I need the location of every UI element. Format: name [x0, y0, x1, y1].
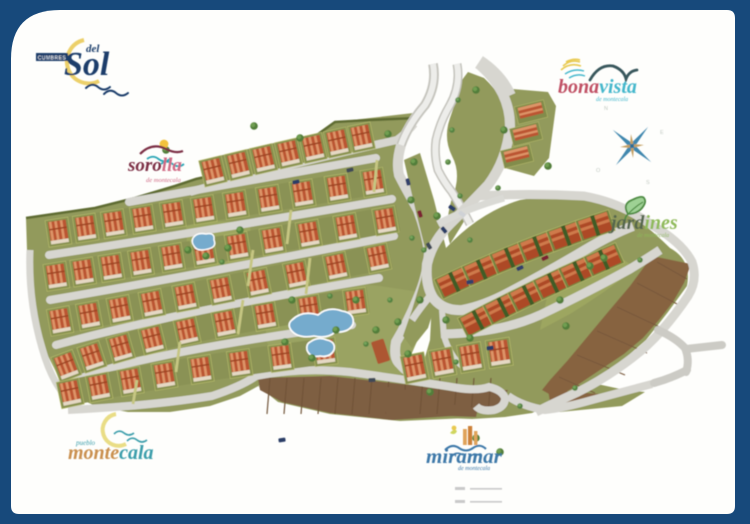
- svg-text:montecala: montecala: [68, 442, 154, 464]
- svg-text:CUMBRES: CUMBRES: [38, 56, 67, 62]
- svg-text:de montecala: de montecala: [458, 466, 490, 472]
- svg-text:miramar: miramar: [426, 444, 503, 468]
- svg-text:N: N: [604, 106, 608, 112]
- svg-text:jardines: jardines: [608, 212, 678, 234]
- svg-text:bonavista: bonavista: [558, 76, 637, 98]
- svg-text:de montecala: de montecala: [637, 233, 669, 239]
- svg-text:Sol: Sol: [64, 46, 110, 83]
- svg-text:S: S: [646, 180, 650, 186]
- svg-text:de montecala: de montecala: [146, 177, 181, 184]
- svg-text:sorolla: sorolla: [127, 155, 182, 176]
- svg-text:E: E: [660, 130, 664, 136]
- svg-text:de montecala: de montecala: [596, 97, 628, 103]
- svg-text:O: O: [596, 168, 601, 174]
